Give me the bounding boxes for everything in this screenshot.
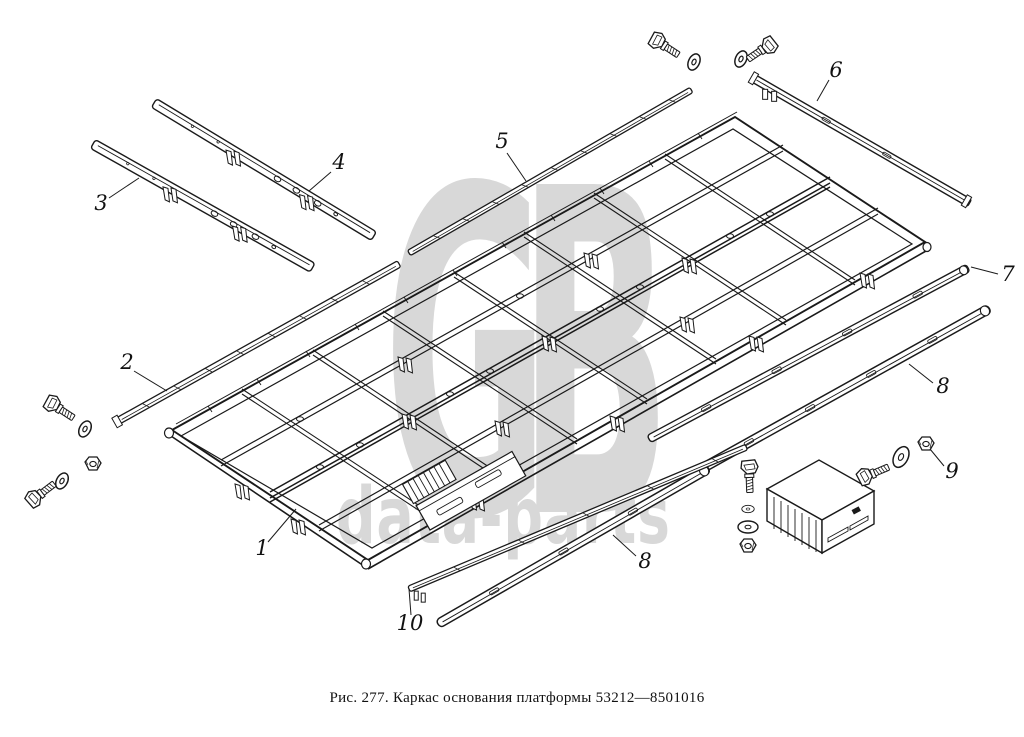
callout-3: 3 [94, 191, 107, 215]
callout-7: 7 [1001, 262, 1015, 286]
callout-8-bottom: 8 [638, 549, 651, 573]
parts-diagram: GB data-parts [0, 0, 1024, 737]
callout-6: 6 [829, 58, 842, 82]
nut-icon [85, 457, 101, 470]
washer-icon [742, 505, 754, 512]
callout-8-right: 8 [936, 374, 949, 398]
callout-4: 4 [331, 150, 345, 174]
callout-5: 5 [495, 129, 508, 153]
callout-9: 9 [945, 459, 958, 483]
callout-10: 10 [397, 611, 424, 635]
nut-icon [740, 539, 756, 552]
callout-1: 1 [255, 536, 268, 560]
parts-diagram-page: GB data-parts [0, 0, 1024, 737]
callout-2: 2 [119, 350, 133, 374]
figure-caption: Рис. 277. Каркас основания платформы 532… [329, 690, 704, 706]
nut-icon [918, 437, 934, 450]
washer-icon [738, 521, 758, 533]
